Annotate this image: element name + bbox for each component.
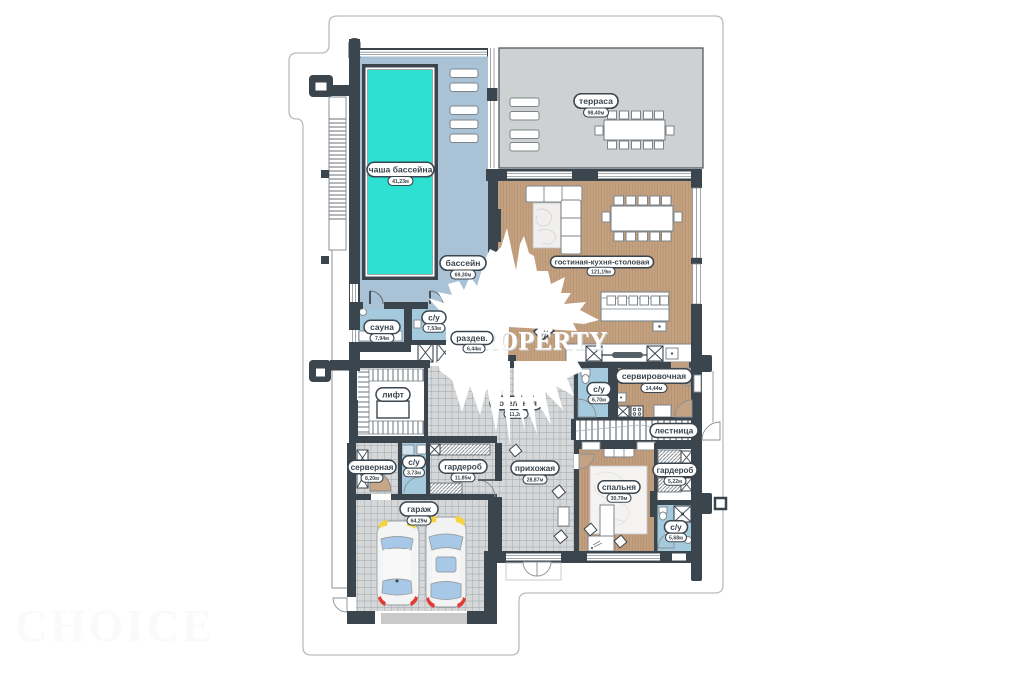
svg-text:8,20м: 8,20м [365,476,379,482]
svg-text:гараж: гараж [407,504,431,514]
svg-text:с/у: с/у [428,313,440,323]
svg-text:терраса: терраса [579,96,613,106]
svg-text:бассейн: бассейн [446,258,481,268]
svg-text:CHOICE: CHOICE [15,601,216,651]
svg-text:5,68м: 5,68м [669,535,683,541]
svg-text:с/у: с/у [593,384,605,394]
svg-text:6,70м: 6,70м [592,397,606,403]
svg-text:лестница: лестница [655,426,694,436]
svg-text:гардероб: гардероб [657,466,694,475]
svg-text:64,29м: 64,29м [411,518,428,524]
svg-text:7,53м: 7,53м [427,326,441,332]
svg-text:69,30м: 69,30м [455,272,472,278]
svg-text:14,44м: 14,44м [646,386,663,392]
svg-text:28,87м: 28,87м [527,477,544,483]
svg-text:121,19м: 121,19м [591,269,611,275]
svg-text:11,85м: 11,85м [455,475,472,481]
svg-text:с/у: с/у [670,523,682,532]
svg-text:гостиная-кухня-столовая: гостиная-кухня-столовая [555,258,650,267]
svg-text:с/у: с/у [408,458,420,467]
svg-text:лифт: лифт [382,390,404,400]
svg-text:98,40м: 98,40м [588,110,605,116]
svg-text:7,94м: 7,94м [375,336,389,342]
svg-text:5,22м: 5,22м [668,479,682,485]
svg-text:спальня: спальня [602,483,636,492]
svg-text:41,23м: 41,23м [392,179,409,185]
svg-text:сервировочная: сервировочная [622,371,686,381]
svg-text:6,44м: 6,44м [467,346,481,352]
svg-text:сауна: сауна [370,322,394,332]
svg-text:чаша бассейна: чаша бассейна [369,165,433,175]
svg-text:серверная: серверная [351,463,394,472]
svg-text:прихожая: прихожая [515,463,555,473]
svg-text:30,79м: 30,79м [611,496,628,502]
svg-text:3,73м: 3,73м [407,470,421,476]
svg-text:раздев.: раздев. [456,333,488,343]
svg-text:гардероб: гардероб [444,461,482,471]
